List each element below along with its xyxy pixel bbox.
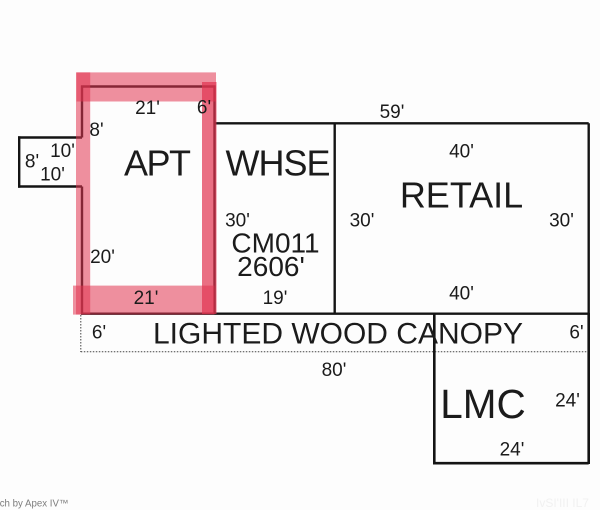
svg-text:WHSE: WHSE bbox=[226, 142, 330, 183]
svg-text:LMC: LMC bbox=[440, 381, 526, 427]
svg-text:24': 24' bbox=[555, 390, 580, 411]
svg-text:8': 8' bbox=[89, 120, 103, 141]
svg-text:6': 6' bbox=[569, 323, 583, 344]
svg-text:30': 30' bbox=[225, 211, 250, 232]
svg-text:21': 21' bbox=[134, 288, 159, 309]
svg-text:21': 21' bbox=[135, 98, 160, 119]
svg-text:20': 20' bbox=[90, 247, 115, 268]
svg-text:LIGHTED WOOD CANOPY: LIGHTED WOOD CANOPY bbox=[153, 318, 523, 351]
svg-text:80': 80' bbox=[322, 360, 347, 381]
svg-text:19': 19' bbox=[263, 288, 288, 309]
svg-text:8': 8' bbox=[25, 152, 39, 173]
svg-text:IvSI'III IL7: IvSI'III IL7 bbox=[536, 496, 589, 510]
svg-text:APT: APT bbox=[124, 142, 191, 183]
svg-text:30': 30' bbox=[350, 211, 375, 232]
svg-text:30': 30' bbox=[549, 211, 574, 232]
svg-text:59': 59' bbox=[380, 102, 405, 123]
svg-text:RETAIL: RETAIL bbox=[400, 175, 523, 216]
svg-text:tch by Apex IV™: tch by Apex IV™ bbox=[0, 499, 69, 510]
svg-text:10': 10' bbox=[40, 165, 65, 186]
svg-text:40': 40' bbox=[449, 142, 474, 163]
svg-text:2606': 2606' bbox=[237, 251, 305, 282]
svg-text:6': 6' bbox=[92, 323, 106, 344]
svg-text:10': 10' bbox=[50, 141, 75, 162]
svg-text:24': 24' bbox=[500, 440, 525, 461]
svg-text:6': 6' bbox=[197, 98, 211, 119]
svg-text:40': 40' bbox=[449, 284, 474, 305]
